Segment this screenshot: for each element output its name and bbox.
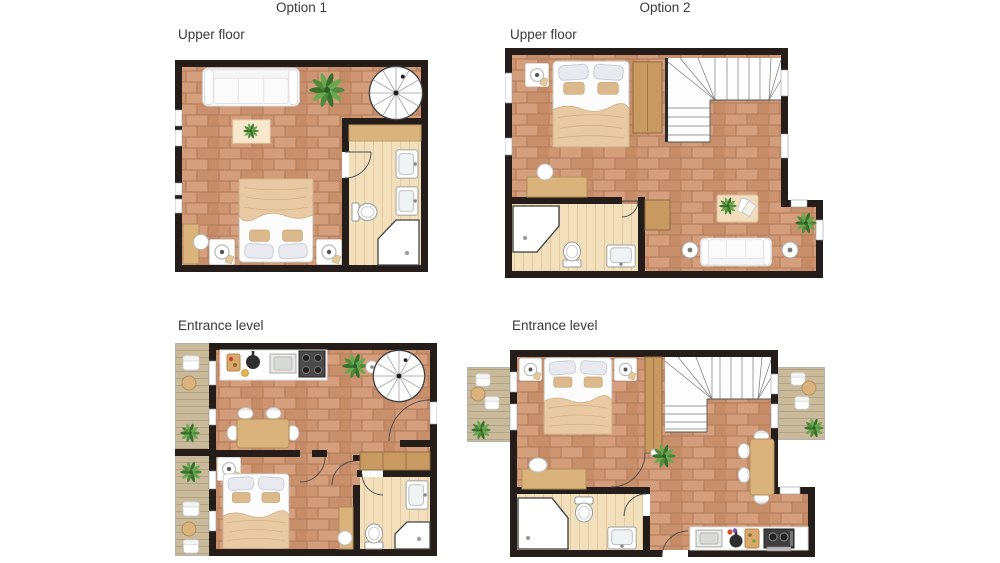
stove	[299, 351, 325, 377]
balcony-right	[779, 368, 825, 440]
bathroom-shelf	[349, 125, 421, 141]
kitchen-counter	[690, 527, 808, 551]
toilet	[575, 497, 593, 522]
spiral-staircase	[373, 350, 424, 401]
floor-plan-option2-upper	[505, 48, 825, 280]
desk	[527, 177, 587, 197]
hall-stool	[338, 531, 352, 545]
sink-1	[396, 150, 418, 178]
floor-plan-option2-entrance	[462, 348, 830, 560]
balcony-chair	[183, 502, 199, 516]
plan-label-option2-entrance: Entrance level	[512, 318, 598, 333]
shower-drain	[526, 536, 530, 540]
balcony-table	[182, 376, 196, 390]
sofa	[202, 68, 299, 106]
column-title-option2: Option 2	[505, 0, 825, 16]
double-bed	[544, 358, 612, 434]
wardrobe	[360, 452, 430, 470]
floor-plans-page: Option 1 Option 2 Upper floor Upper floo…	[0, 0, 1000, 563]
double-bed	[223, 474, 289, 548]
balcony-chair	[184, 540, 199, 553]
double-bed	[553, 61, 629, 147]
sink	[608, 527, 636, 549]
plan-label-option2-upper: Upper floor	[510, 27, 577, 42]
round-lamp-table-left	[682, 242, 698, 258]
cutting-board	[745, 529, 759, 548]
balcony-chair	[791, 373, 805, 385]
bedside-lamp-table-right	[317, 240, 342, 265]
vase-center	[370, 365, 374, 369]
nightstand-lamp-right	[614, 358, 636, 380]
column-title-option1: Option 1	[175, 0, 428, 16]
cabinet	[645, 200, 670, 230]
floor-plan-option1-entrance	[175, 343, 437, 558]
floor-plan-option1-upper	[175, 60, 428, 272]
nightstand-lamp	[525, 63, 548, 86]
shower-drain	[417, 537, 421, 541]
wardrobe	[633, 62, 662, 133]
nightstand-lamp-left	[519, 358, 541, 380]
balcony-table	[802, 381, 816, 395]
sink	[607, 245, 635, 267]
balcony-chair	[795, 397, 809, 409]
spiral-staircase	[369, 66, 422, 119]
toilet	[365, 524, 383, 549]
dining-table	[237, 419, 289, 448]
double-bed	[239, 179, 313, 262]
wardrobe	[645, 357, 662, 453]
coffee-table	[717, 195, 758, 222]
cutting-board	[227, 354, 240, 371]
desk-chair	[537, 164, 553, 180]
balcony-table	[471, 387, 485, 401]
desk-chair	[529, 458, 547, 472]
desk-chair	[194, 235, 209, 250]
bedside-lamp-table-left	[210, 240, 235, 265]
balcony-chair	[183, 356, 199, 370]
sofa	[700, 238, 771, 266]
balcony-chair	[485, 397, 499, 409]
sink-2	[396, 187, 418, 215]
dining-table	[750, 439, 774, 495]
shower-drain	[405, 251, 409, 255]
frying-pan	[730, 535, 743, 548]
stove	[764, 529, 794, 551]
kitchen-counter	[220, 350, 327, 380]
sink	[406, 481, 428, 509]
balcony-left	[468, 368, 513, 442]
desk	[522, 469, 586, 489]
fruit-bowl	[242, 370, 249, 377]
toilet	[352, 203, 377, 221]
round-lamp-table-right	[782, 242, 798, 258]
plan-label-option1-upper: Upper floor	[178, 27, 245, 42]
frying-pan	[246, 355, 260, 369]
balcony-table	[182, 522, 196, 536]
shower-drain	[523, 236, 527, 240]
bathroom-door-opening	[342, 152, 349, 178]
balcony-chair	[476, 374, 490, 386]
toilet	[563, 242, 581, 267]
plan-label-option1-entrance: Entrance level	[178, 318, 264, 333]
